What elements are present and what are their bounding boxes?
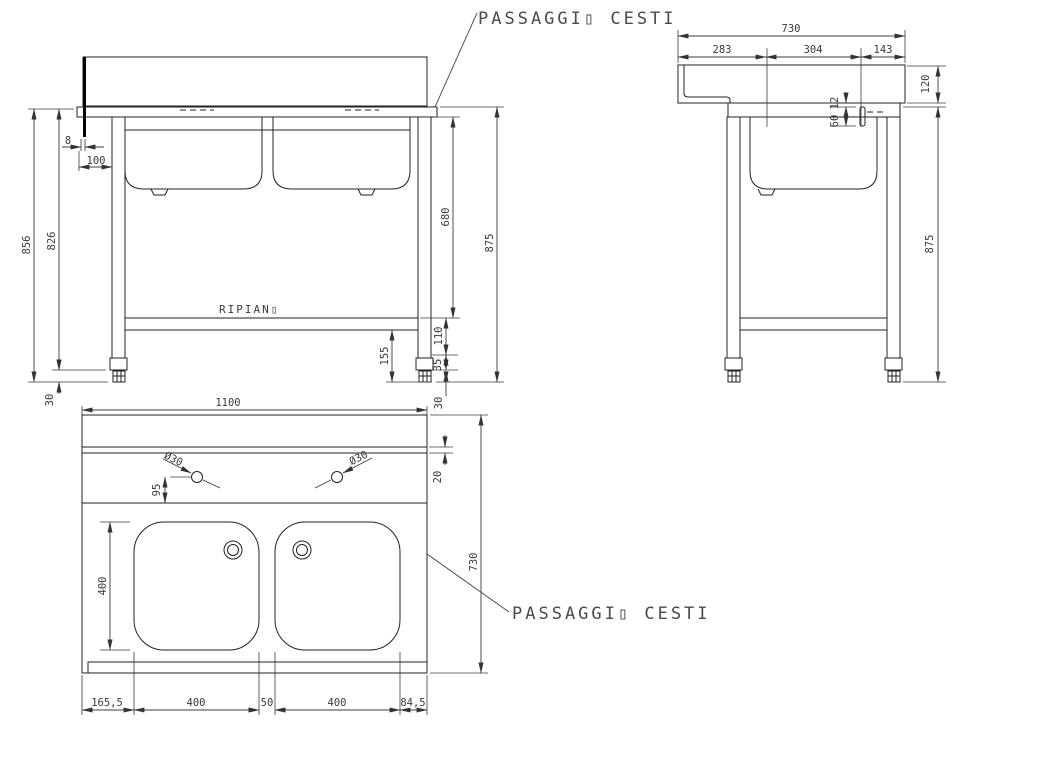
side-leg-left [727,117,740,358]
plan-tap-hole-right [332,472,343,483]
front-leg-right-socket [416,358,433,370]
leader-top [435,13,477,107]
front-foot-left-detail [113,371,125,382]
side-bowl [750,117,877,189]
dim-165-text: 165,5 [91,697,123,709]
dim-730S-text: 730 [782,23,801,35]
side-feature-lines [767,48,861,127]
dim-30L-text: 30 [44,394,56,407]
dim-50-text: 50 [261,697,274,709]
ext-1100 [82,406,427,415]
front-leg-left-socket [110,358,127,370]
dim-826-text: 826 [46,232,58,251]
dim-110-text: 110 [433,327,445,346]
plan-tap-hole-left [192,472,203,483]
ext-left-dims [28,109,108,382]
plan-drain-right-inner [297,545,308,556]
front-drain-right [358,189,375,195]
dim-143-text: 143 [874,44,893,56]
dim-30R-text: 30 [433,397,445,410]
plan-outline [82,415,427,673]
ext-20 [429,447,453,453]
dim-304-text: 304 [804,44,823,56]
side-foot-left-detail [728,371,740,382]
side-drain [758,189,775,195]
side-front-edge-profile [684,65,730,103]
dim-875F-text: 875 [484,234,496,253]
plan-front-edge-inner [88,662,427,673]
front-leg-left [112,117,125,358]
dim-120-text: 120 [920,75,932,94]
dim-12-text: 12 [829,97,841,110]
plan-bowl-left [134,522,259,650]
passaggio-cesti-bottom: PASSAGGI▯ CESTI [512,604,711,624]
side-view [678,48,905,382]
dim-60-text: 60 [829,115,841,128]
front-leg-right [418,117,431,358]
annotations: PASSAGGI▯ CESTI PASSAGGI▯ CESTI [427,9,711,624]
dim-1100-text: 1100 [215,397,240,409]
front-foot-right-detail [419,371,431,382]
passaggio-cesti-top: PASSAGGI▯ CESTI [478,9,677,29]
front-bowl-right [273,117,410,189]
front-worktop [77,107,437,117]
plan-drain-right-outer [293,541,311,559]
plan-drain-left-inner [228,545,239,556]
ripiano-label: RIPIAN▯ [219,303,279,316]
side-view-dimensions: 730 283 304 143 120 12 60 875 [678,23,946,382]
dim-35-text: 35 [432,359,444,372]
dim-400b-text: 400 [328,697,347,709]
dim-283-text: 283 [713,44,732,56]
leader-dia-right-b [315,480,331,488]
dim-856-text: 856 [21,236,33,255]
dim-84-text: 84,5 [400,697,425,709]
dim-400side-text: 400 [97,577,109,596]
dim-95-text: 95 [151,484,163,497]
dim-155-text: 155 [379,347,391,366]
front-view: RIPIAN▯ [77,57,437,382]
technical-drawing-canvas: RIPIAN▯ 8 100 856 826 30 680 110 35 30 [0,0,1051,778]
dim-100-text: 100 [87,155,106,167]
sink-technical-drawing: RIPIAN▯ 8 100 856 826 30 680 110 35 30 [0,0,1051,778]
front-bowl-left [125,117,262,189]
ext-bottom-chain [82,652,427,715]
dim-400a-text: 400 [187,697,206,709]
front-backsplash [83,57,427,106]
ext-730-plan [430,415,488,673]
side-leg-left-socket [725,358,742,370]
plan-drain-left-outer [224,541,242,559]
dim-8-text: 8 [65,135,71,147]
dim-875S-text: 875 [924,235,936,254]
side-foot-right-detail [888,371,900,382]
dim-20-text: 20 [432,471,444,484]
plan-bowl-right [275,522,400,650]
side-leg-right-socket [885,358,902,370]
front-drain-left [151,189,168,195]
dim-730P-text: 730 [468,553,480,572]
side-apron [728,103,900,117]
plan-view [82,415,427,673]
dim-680-text: 680 [440,208,452,227]
ext-8 [81,139,85,151]
leader-dia-left-b [203,480,220,488]
side-leg-right [887,117,900,358]
